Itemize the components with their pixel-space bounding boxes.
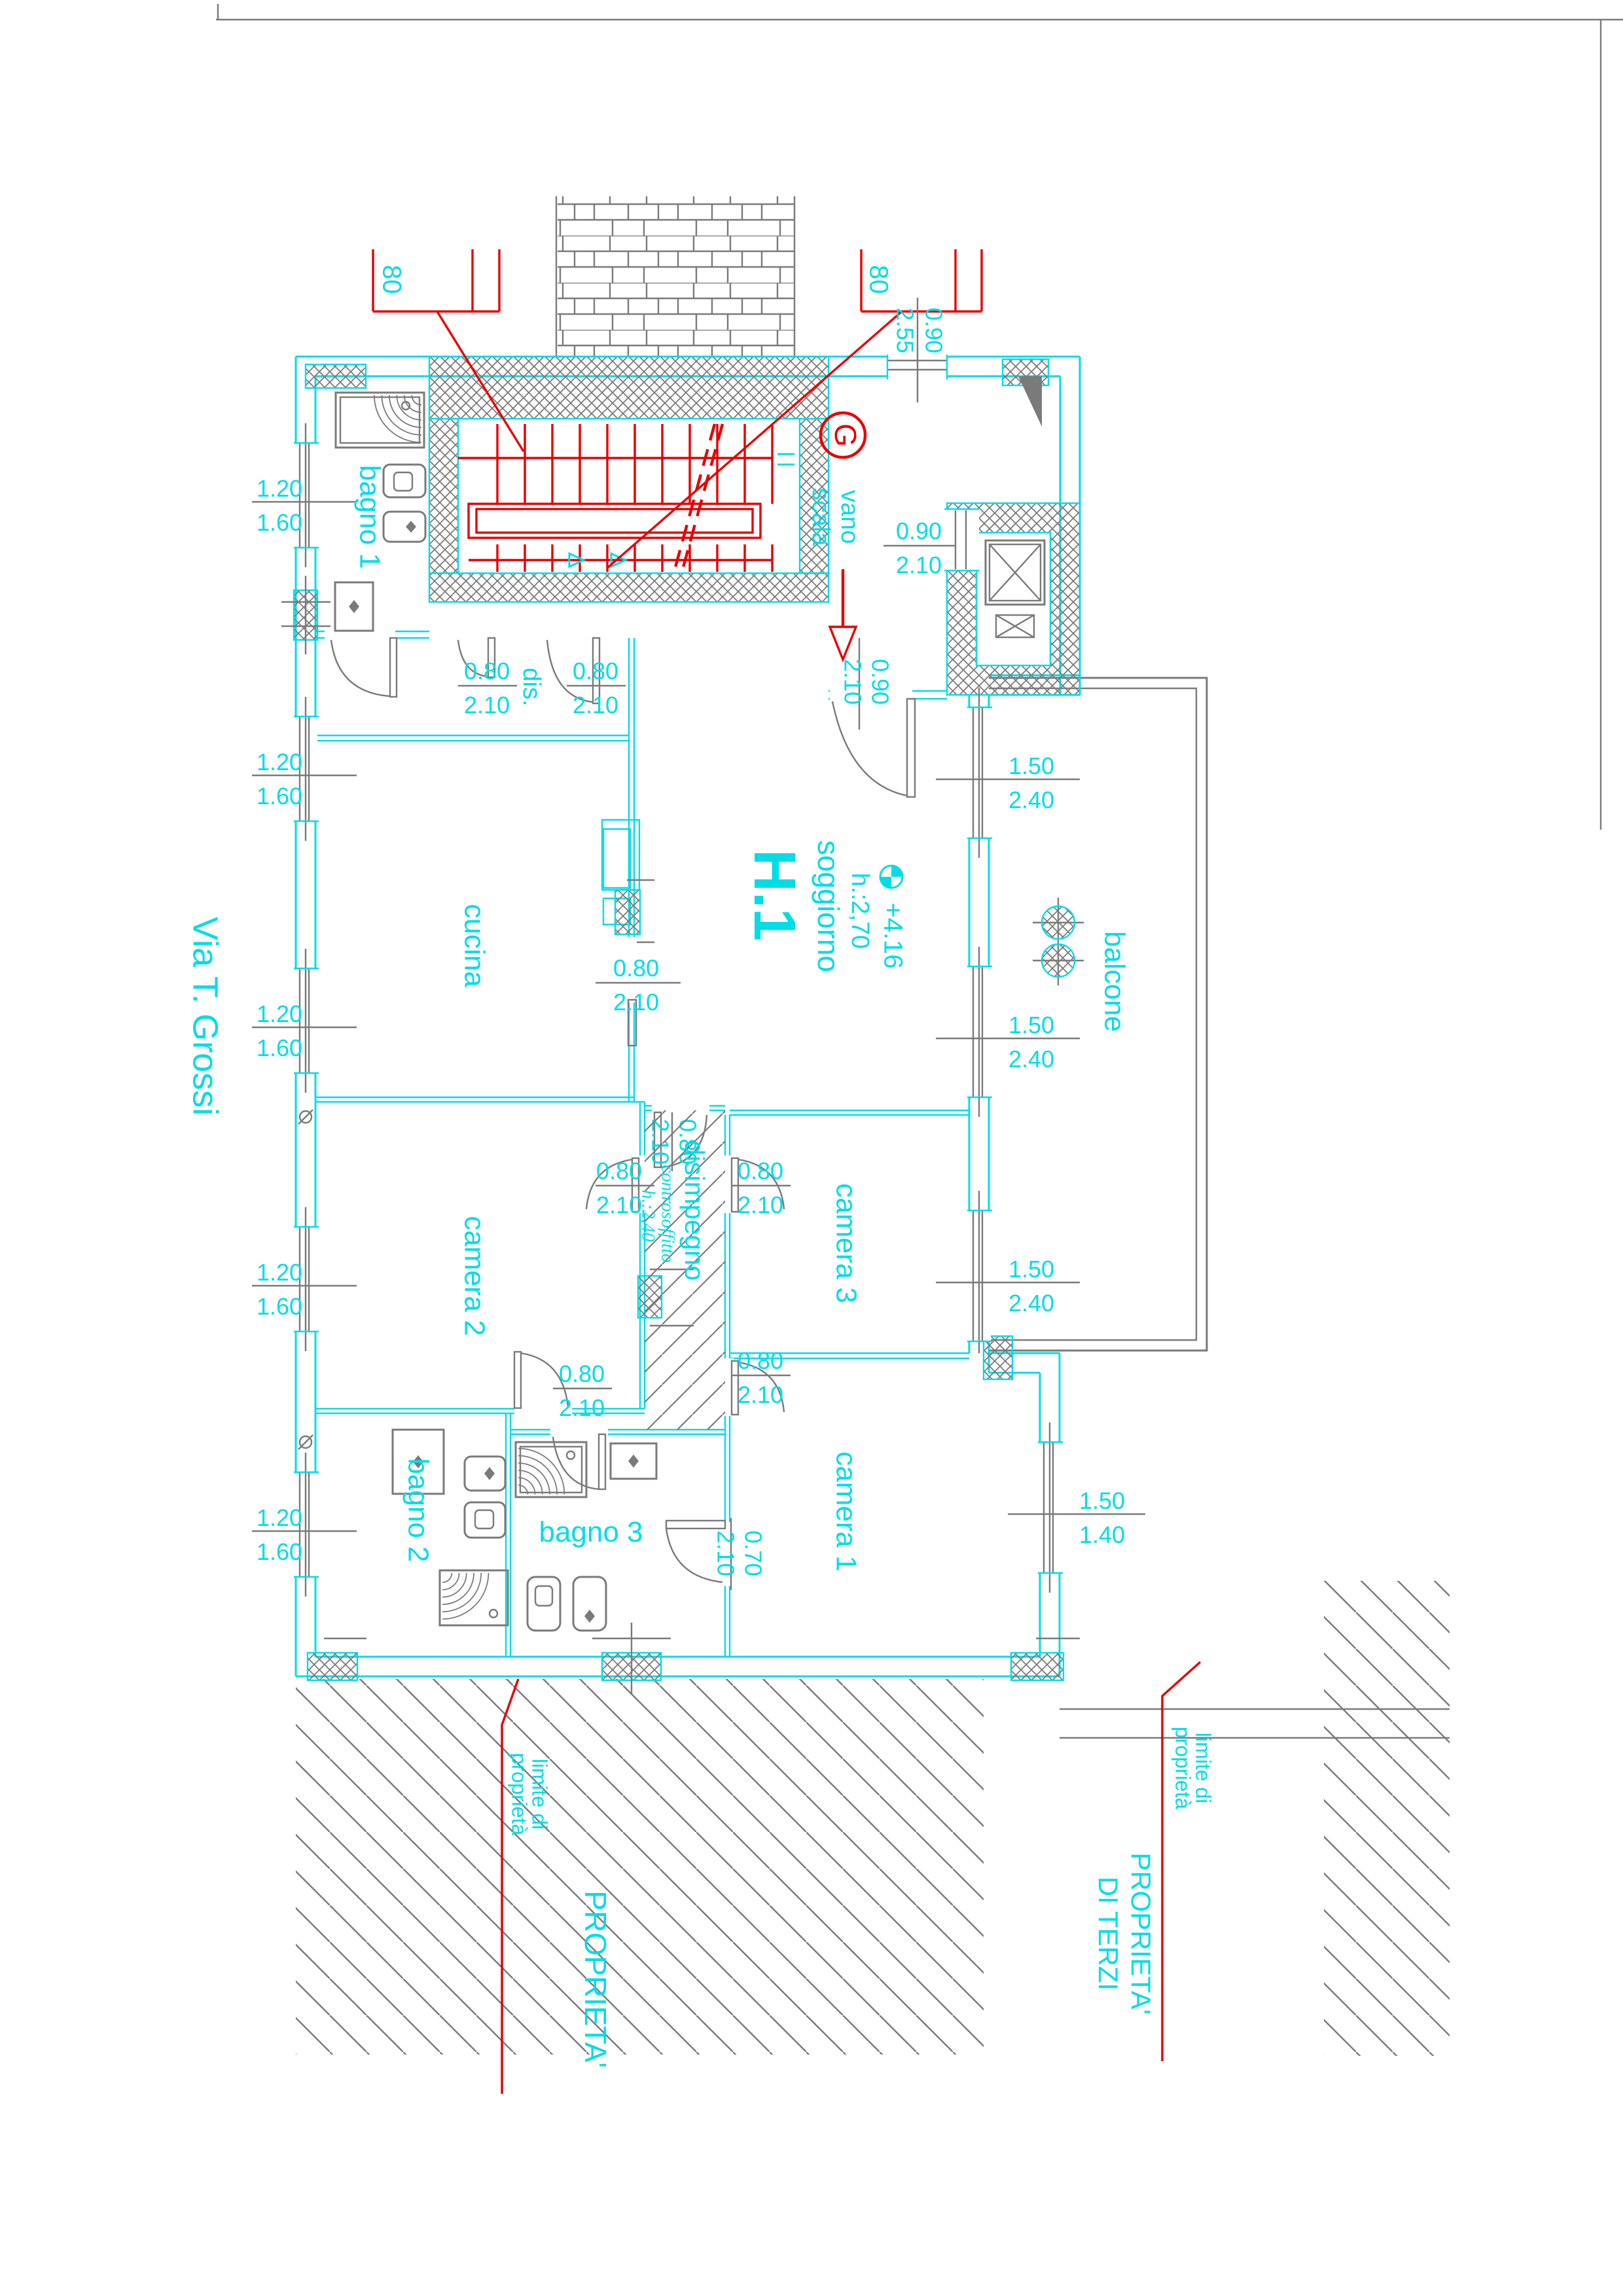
- dim-text: 1.50: [1079, 1487, 1125, 1514]
- dim-text: 0.90: [896, 518, 942, 544]
- dim-text: 0.80: [613, 955, 659, 981]
- dim-text: 2.10: [464, 692, 510, 718]
- street-label: Via T. Grossi: [186, 917, 225, 1116]
- third-party-label-1: PROPRIETA': [1126, 1852, 1156, 2015]
- wc: [465, 1502, 505, 1538]
- room-label-bagno1: bagno 1: [353, 465, 385, 569]
- dim-text: 1.60: [257, 783, 302, 809]
- shower-tray: [336, 393, 424, 448]
- stairwell-walls: [429, 357, 829, 602]
- window-left-1: 1.20 1.60: [252, 423, 357, 567]
- site-hatch-right: [1324, 1581, 1450, 2056]
- room-label-controsoffitto-h: h.:2,40: [638, 1190, 658, 1241]
- stair-treads: [458, 424, 794, 572]
- stairwell-label-vano: vano: [836, 490, 863, 544]
- dim-text: 1.20: [257, 1504, 302, 1531]
- unit-id: H.1: [741, 849, 807, 941]
- dim-text: 1.60: [257, 509, 302, 536]
- room-label-bagno3: bagno 3: [539, 1516, 643, 1548]
- dim-text: 2.10: [738, 1192, 783, 1218]
- dim-text: 0.80: [559, 1360, 605, 1387]
- room-label-disimpegno: disimpegno: [679, 1140, 710, 1281]
- dim-text: 1.50: [1008, 752, 1054, 779]
- stair-width-label-right: 80: [864, 265, 893, 294]
- stairwell-mark: G: [829, 423, 863, 447]
- unit-level: +4.16: [878, 902, 907, 968]
- dim-text: 0.90: [920, 308, 947, 353]
- wc: [383, 465, 425, 497]
- unit-labels: H.1 soggiorno h.:2,70 +4.16: [741, 840, 907, 972]
- dim-text: 2.10: [559, 1394, 605, 1421]
- door-camera3: 0.80 2.10: [722, 1156, 791, 1218]
- dim-text: 2.55: [891, 308, 918, 353]
- dim-text: 1.20: [257, 475, 302, 502]
- elevator: [944, 503, 1080, 695]
- window-left-5: 1.20 1.60: [252, 1453, 357, 1597]
- door-camera1: 0.80 2.10: [722, 1347, 791, 1416]
- door-corridor-1: 0.80 2.10: [453, 629, 517, 718]
- entrance-marker-icon: [1018, 376, 1042, 427]
- dim-text: 2.10: [839, 659, 866, 705]
- dim-text: 1.20: [257, 1000, 302, 1027]
- dim-text: 2.10: [738, 1381, 783, 1408]
- dim-text: 0.80: [573, 658, 618, 684]
- third-party-label-2: DI TERZI: [1093, 1877, 1124, 1990]
- unit-ceiling: h.:2,70: [846, 873, 874, 949]
- level-marker-icon: [880, 866, 902, 888]
- property-label: PROPRIETA': [579, 1890, 613, 2068]
- dim-text: 0.80: [464, 658, 510, 684]
- dim-text: 2.40: [1008, 1046, 1054, 1072]
- dim-text: 0.80: [738, 1157, 783, 1184]
- floor-plan: 80 80 1.20 1.60 1.20 1.60 1.20 1.60 1.20…: [0, 0, 1623, 2296]
- dim-text: 1.50: [1008, 1256, 1054, 1282]
- door-bagno3-inner: 0.70 2.10: [666, 1518, 766, 1590]
- dim-text: 2.10: [712, 1530, 739, 1576]
- door-bagno1: [325, 629, 397, 697]
- window-right-3: 1.50 2.40: [936, 1191, 1080, 1353]
- stair-width-label-left: 80: [377, 265, 406, 294]
- door-corridor-2: 0.80 2.10: [544, 629, 626, 718]
- dim-text: 0.80: [738, 1347, 783, 1374]
- dim-text: 2.10: [596, 1192, 642, 1218]
- boundary-label: proprietà: [1171, 1727, 1195, 1810]
- window-left-4: 1.20 1.60: [252, 1207, 357, 1351]
- unit-room: soggiorno: [811, 840, 846, 972]
- bidet: [383, 512, 425, 542]
- window-left-2: 1.20 1.60: [252, 697, 357, 841]
- dim-text: 0.80: [596, 1157, 642, 1184]
- room-label-camera3: camera 3: [830, 1183, 862, 1303]
- room-label-controsoffitto: controsoffitto: [658, 1165, 678, 1263]
- room-label-camera2: camera 2: [458, 1216, 490, 1335]
- sheet-frame: [216, 4, 1623, 830]
- window-right-1: 1.50 2.40: [936, 688, 1080, 858]
- dim-text: 1.20: [257, 1259, 302, 1286]
- room-label-camera1: camera 1: [830, 1451, 862, 1571]
- dim-text: 2.40: [1008, 786, 1054, 813]
- dim-text: 1.20: [257, 749, 302, 775]
- dim-text: 1.60: [257, 1034, 302, 1061]
- dim-text: 1.50: [1008, 1012, 1054, 1038]
- stairwell-label-scala: scala: [807, 488, 834, 547]
- window-camera1: 1.50 1.40: [1008, 1422, 1145, 1593]
- balcony-pillars: [1033, 898, 1084, 985]
- wc: [527, 1577, 560, 1631]
- dim-text: 0.90: [866, 659, 893, 705]
- dim-text: 1.60: [257, 1293, 302, 1320]
- dim-text: 1.40: [1079, 1521, 1125, 1548]
- boundary-label: proprietà: [508, 1753, 531, 1836]
- dim-text: 2.40: [1008, 1290, 1054, 1316]
- site-hatch-left: [296, 1679, 984, 2055]
- dim-text: 2.10: [896, 552, 942, 578]
- room-label-bagno2: bagno 2: [402, 1458, 434, 1562]
- room-label-dis: dis.: [518, 667, 545, 706]
- room-label-cucina: cucina: [458, 904, 490, 987]
- room-label-balcone: balcone: [1098, 931, 1130, 1032]
- door-cucina: 0.80 2.10: [596, 937, 681, 1046]
- roof-tiles: [556, 196, 794, 357]
- boundary-line-right: limite di proprietà: [1162, 1662, 1215, 2061]
- window-top: 0.90 2.55: [887, 298, 947, 402]
- dim-text: 2.10: [573, 692, 618, 718]
- dim-text: 2.10: [613, 989, 659, 1016]
- dim-text: 1.60: [257, 1538, 302, 1565]
- window-left-3: 1.20 1.60: [252, 949, 357, 1093]
- dim-text: 0.70: [740, 1530, 766, 1576]
